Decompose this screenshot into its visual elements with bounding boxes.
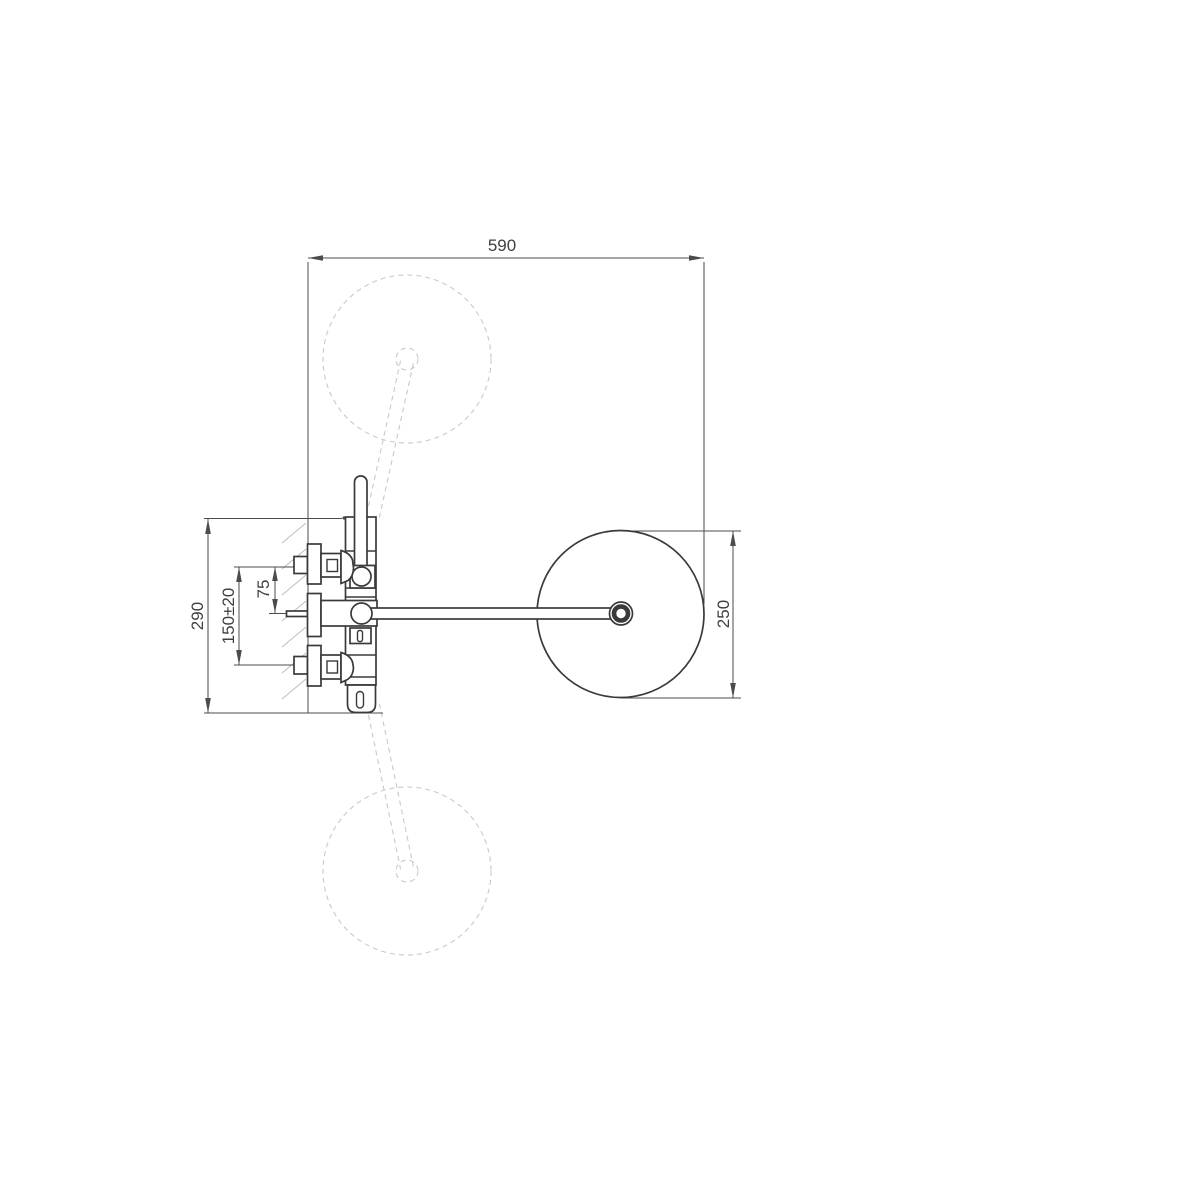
arrowhead: [272, 599, 278, 613]
arm-swivel-joint: [351, 603, 372, 624]
arrowhead: [205, 698, 211, 713]
spout-pin: [287, 611, 308, 617]
arrowhead: [236, 567, 242, 582]
technical-drawing-page: 590 290 150±20 75 250: [0, 0, 1200, 1200]
top-inlet-escutcheon: [308, 544, 322, 584]
bottom-inlet-connection: [294, 646, 354, 687]
bottom-inlet-knob: [294, 657, 308, 675]
arrowhead: [236, 650, 242, 665]
dimension-75: 75: [254, 567, 286, 614]
bottom-inlet-escutcheon: [308, 646, 322, 687]
spout-escutcheon: [308, 594, 322, 637]
shower-arm: [366, 608, 614, 619]
wall: [282, 262, 308, 713]
dimension-label: 290: [188, 602, 207, 630]
arrowhead: [308, 255, 323, 261]
ghost-position-top: [323, 275, 491, 517]
mixer-dimension-drawing: 590 290 150±20 75 250: [0, 0, 1200, 1200]
dimension-label: 250: [714, 600, 733, 628]
ghost-arm-hub-top: [396, 348, 418, 370]
mixer-fixture: [287, 476, 633, 713]
dimension-label: 590: [488, 236, 516, 255]
arrowhead: [689, 255, 704, 261]
arrowhead: [205, 519, 211, 534]
ghost-position-bottom: [323, 704, 491, 955]
arrowhead: [730, 531, 736, 546]
top-inlet-knob: [294, 557, 308, 574]
handle-hinge-pivot: [352, 567, 371, 586]
ghost-arm-bottom-edge: [379, 704, 413, 867]
ghost-shower-head-top-outline: [323, 275, 491, 443]
arrowhead: [272, 567, 278, 581]
ghost-arm-top-edge: [367, 361, 401, 515]
dimension-label: 75: [254, 580, 273, 599]
ghost-arm-bottom-edge: [367, 706, 401, 869]
arrowhead: [730, 683, 736, 698]
ghost-arm-hub-bottom: [396, 860, 418, 882]
lever-handle: [355, 476, 368, 572]
dimension-label: 150±20: [219, 588, 238, 645]
ghost-shower-head-bottom-outline: [323, 787, 491, 955]
